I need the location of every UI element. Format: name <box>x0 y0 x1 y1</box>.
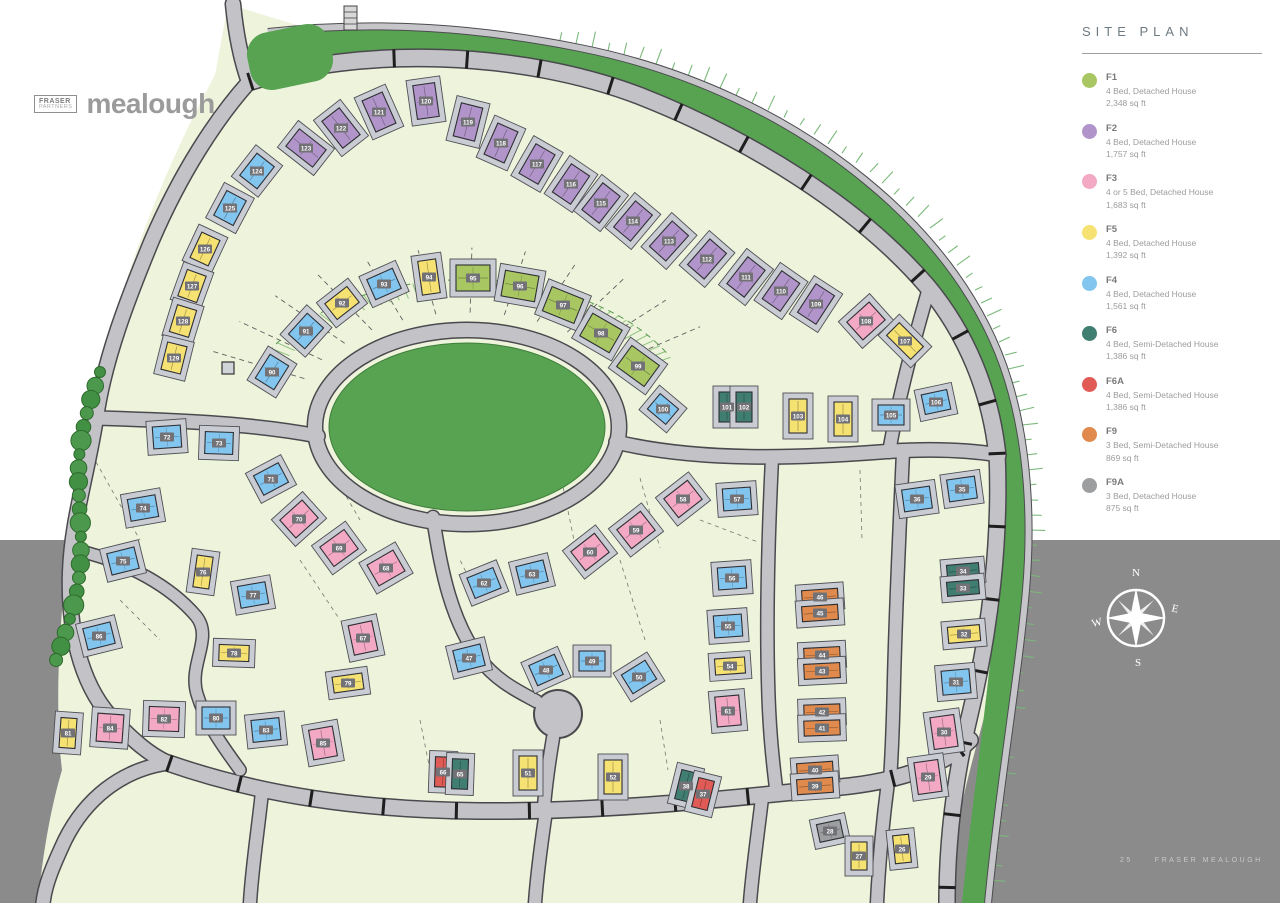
f1-code: F1 <box>1106 72 1196 83</box>
svg-text:102: 102 <box>739 404 750 411</box>
development-name: mealough <box>86 88 214 120</box>
svg-text:69: 69 <box>336 545 343 552</box>
svg-text:126: 126 <box>200 246 211 253</box>
footer-title: FRASER MEALOUGH <box>1155 857 1263 864</box>
legend-item-f1: F1 4 Bed, Detached House 2,348 sq ft <box>1082 72 1262 110</box>
f6-code: F6 <box>1106 325 1218 336</box>
f9a-color-dot <box>1082 478 1097 493</box>
svg-text:90: 90 <box>269 369 276 376</box>
f9a-desc: 3 Bed, Detached House <box>1106 490 1196 502</box>
compass-n: N <box>1132 567 1140 579</box>
svg-text:117: 117 <box>532 161 543 168</box>
f3-area: 1,683 sq ft <box>1106 199 1213 211</box>
svg-text:41: 41 <box>819 725 826 732</box>
legend-item-f5: F5 4 Bed, Detached House 1,392 sq ft <box>1082 224 1262 262</box>
svg-text:109: 109 <box>811 301 822 308</box>
svg-text:91: 91 <box>303 328 310 335</box>
svg-text:93: 93 <box>381 281 388 288</box>
f2-desc: 4 Bed, Detached House <box>1106 136 1196 148</box>
svg-text:122: 122 <box>336 125 347 132</box>
compass-rose: N E S W <box>1088 562 1184 672</box>
fraser-partners-logo-box: FRASER PARTNERS <box>34 95 77 114</box>
svg-text:62: 62 <box>481 580 488 587</box>
page-number: 25 <box>1120 857 1133 864</box>
svg-text:106: 106 <box>931 399 942 406</box>
svg-text:76: 76 <box>200 569 207 576</box>
f3-color-dot <box>1082 174 1097 189</box>
svg-text:43: 43 <box>819 668 826 675</box>
svg-text:39: 39 <box>812 783 819 790</box>
page-footer: 25 FRASER MEALOUGH <box>1120 857 1263 864</box>
svg-text:92: 92 <box>339 300 346 307</box>
f5-area: 1,392 sq ft <box>1106 249 1196 261</box>
svg-text:101: 101 <box>722 404 733 411</box>
svg-text:49: 49 <box>589 658 596 665</box>
svg-text:38: 38 <box>683 783 690 790</box>
f6-area: 1,386 sq ft <box>1106 350 1218 362</box>
f6a-code: F6A <box>1106 376 1218 387</box>
svg-text:94: 94 <box>426 274 433 281</box>
f5-color-dot <box>1082 225 1097 240</box>
svg-text:71: 71 <box>268 476 275 483</box>
svg-text:45: 45 <box>817 610 824 617</box>
svg-text:77: 77 <box>250 592 257 599</box>
svg-text:105: 105 <box>886 412 897 419</box>
svg-text:35: 35 <box>959 486 966 493</box>
svg-text:28: 28 <box>827 828 834 835</box>
svg-text:83: 83 <box>263 727 270 734</box>
compass-e: E <box>1170 602 1180 615</box>
svg-text:82: 82 <box>161 716 168 723</box>
svg-text:67: 67 <box>360 635 367 642</box>
svg-text:78: 78 <box>231 650 238 657</box>
svg-text:81: 81 <box>65 730 72 737</box>
f6-color-dot <box>1082 326 1097 341</box>
svg-text:129: 129 <box>169 355 180 362</box>
svg-text:118: 118 <box>496 140 507 147</box>
svg-text:65: 65 <box>457 771 464 778</box>
svg-text:104: 104 <box>838 416 849 423</box>
legend-item-f6a: F6A 4 Bed, Semi-Detached House 1,386 sq … <box>1082 376 1262 414</box>
f5-code: F5 <box>1106 224 1196 235</box>
legend-item-f3: F3 4 or 5 Bed, Detached House 1,683 sq f… <box>1082 173 1262 211</box>
svg-text:32: 32 <box>961 631 968 638</box>
svg-text:54: 54 <box>727 663 734 670</box>
f2-color-dot <box>1082 124 1097 139</box>
svg-text:68: 68 <box>383 565 390 572</box>
svg-text:125: 125 <box>225 205 236 212</box>
f6a-area: 1,386 sq ft <box>1106 401 1218 413</box>
svg-text:40: 40 <box>812 767 819 774</box>
substation-box <box>222 362 234 374</box>
svg-text:123: 123 <box>301 145 312 152</box>
svg-text:114: 114 <box>628 218 639 225</box>
legend-item-f4: F4 4 Bed, Detached House 1,561 sq ft <box>1082 275 1262 313</box>
svg-text:80: 80 <box>213 715 220 722</box>
svg-text:79: 79 <box>345 680 352 687</box>
logo-box-line2: PARTNERS <box>39 105 72 111</box>
svg-text:55: 55 <box>725 623 732 630</box>
compass-w: W <box>1091 616 1105 630</box>
f4-color-dot <box>1082 276 1097 291</box>
svg-text:74: 74 <box>140 505 147 512</box>
f2-area: 1,757 sq ft <box>1106 148 1196 160</box>
svg-text:128: 128 <box>178 318 189 325</box>
f3-desc: 4 or 5 Bed, Detached House <box>1106 186 1213 198</box>
svg-text:50: 50 <box>636 674 643 681</box>
svg-text:61: 61 <box>725 708 732 715</box>
svg-text:29: 29 <box>925 774 932 781</box>
svg-text:72: 72 <box>164 434 171 441</box>
svg-text:103: 103 <box>793 413 804 420</box>
svg-text:120: 120 <box>421 98 432 105</box>
svg-text:47: 47 <box>466 655 473 662</box>
legend-panel: SITE PLAN F1 4 Bed, Detached House 2,348… <box>1082 24 1262 528</box>
svg-text:85: 85 <box>320 740 327 747</box>
svg-text:52: 52 <box>610 774 617 781</box>
svg-text:98: 98 <box>598 330 605 337</box>
svg-text:37: 37 <box>700 791 707 798</box>
developer-logo: FRASER PARTNERS mealough <box>34 88 215 120</box>
svg-text:51: 51 <box>525 770 532 777</box>
svg-text:121: 121 <box>374 109 385 116</box>
svg-text:112: 112 <box>702 256 713 263</box>
legend-title: SITE PLAN <box>1082 24 1262 39</box>
svg-text:36: 36 <box>914 496 921 503</box>
legend-item-f9a: F9A 3 Bed, Detached House 875 sq ft <box>1082 477 1262 515</box>
svg-text:30: 30 <box>941 729 948 736</box>
legend-item-f9: F9 3 Bed, Semi-Detached House 869 sq ft <box>1082 426 1262 464</box>
svg-text:84: 84 <box>107 725 114 732</box>
svg-text:34: 34 <box>960 568 967 575</box>
f1-color-dot <box>1082 73 1097 88</box>
svg-text:33: 33 <box>960 585 967 592</box>
f1-desc: 4 Bed, Detached House <box>1106 85 1196 97</box>
svg-text:27: 27 <box>856 853 863 860</box>
f6a-color-dot <box>1082 377 1097 392</box>
svg-text:46: 46 <box>817 594 824 601</box>
svg-text:57: 57 <box>734 496 741 503</box>
svg-text:60: 60 <box>587 549 594 556</box>
svg-text:95: 95 <box>470 275 477 282</box>
svg-text:66: 66 <box>440 769 447 776</box>
f9-code: F9 <box>1106 426 1218 437</box>
f4-area: 1,561 sq ft <box>1106 300 1196 312</box>
f9a-area: 875 sq ft <box>1106 502 1196 514</box>
svg-text:86: 86 <box>96 633 103 640</box>
f9-area: 869 sq ft <box>1106 452 1218 464</box>
svg-text:44: 44 <box>819 652 826 659</box>
utility-object-top <box>344 6 357 30</box>
f9-color-dot <box>1082 427 1097 442</box>
svg-text:73: 73 <box>216 440 223 447</box>
f2-code: F2 <box>1106 123 1196 134</box>
site-plan-page: 1231221211201191181171161151141131121111… <box>0 0 1280 903</box>
f4-desc: 4 Bed, Detached House <box>1106 288 1196 300</box>
svg-text:42: 42 <box>819 709 826 716</box>
svg-text:70: 70 <box>296 516 303 523</box>
compass-star <box>1106 588 1166 648</box>
svg-text:75: 75 <box>120 558 127 565</box>
svg-text:110: 110 <box>776 288 787 295</box>
svg-text:113: 113 <box>664 238 675 245</box>
f4-code: F4 <box>1106 275 1196 286</box>
svg-text:63: 63 <box>529 571 536 578</box>
svg-text:59: 59 <box>633 527 640 534</box>
svg-text:119: 119 <box>463 119 474 126</box>
compass-s: S <box>1135 657 1141 669</box>
legend-item-f6: F6 4 Bed, Semi-Detached House 1,386 sq f… <box>1082 325 1262 363</box>
svg-text:127: 127 <box>187 283 198 290</box>
f1-area: 2,348 sq ft <box>1106 97 1196 109</box>
svg-text:99: 99 <box>635 363 642 370</box>
f9a-code: F9A <box>1106 477 1196 488</box>
f3-code: F3 <box>1106 173 1213 184</box>
svg-text:58: 58 <box>680 496 687 503</box>
f6a-desc: 4 Bed, Semi-Detached House <box>1106 389 1218 401</box>
svg-text:97: 97 <box>560 302 567 309</box>
svg-text:96: 96 <box>517 283 524 290</box>
svg-text:116: 116 <box>566 181 577 188</box>
svg-text:111: 111 <box>741 274 751 281</box>
central-green-oval <box>329 343 605 511</box>
svg-text:26: 26 <box>899 846 906 853</box>
svg-text:31: 31 <box>953 679 960 686</box>
svg-text:107: 107 <box>900 338 911 345</box>
legend-item-f2: F2 4 Bed, Detached House 1,757 sq ft <box>1082 123 1262 161</box>
svg-text:124: 124 <box>252 168 263 175</box>
legend-divider <box>1082 53 1262 54</box>
svg-text:100: 100 <box>658 406 669 413</box>
svg-text:108: 108 <box>861 318 872 325</box>
f9-desc: 3 Bed, Semi-Detached House <box>1106 439 1218 451</box>
f5-desc: 4 Bed, Detached House <box>1106 237 1196 249</box>
f6-desc: 4 Bed, Semi-Detached House <box>1106 338 1218 350</box>
svg-text:48: 48 <box>543 667 550 674</box>
svg-text:115: 115 <box>596 200 607 207</box>
svg-text:56: 56 <box>729 575 736 582</box>
